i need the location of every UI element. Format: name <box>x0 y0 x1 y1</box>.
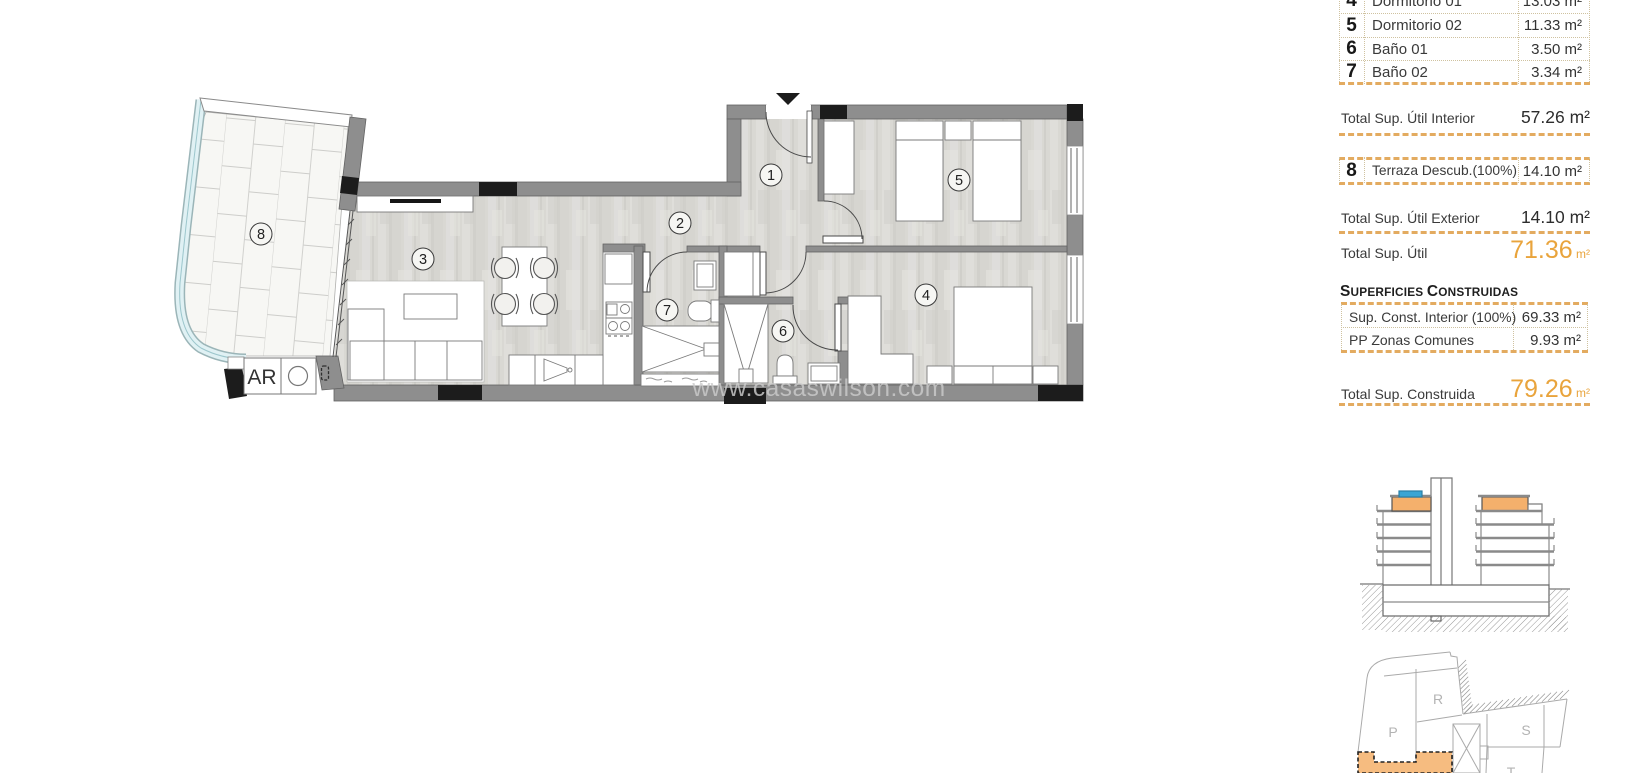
svg-text:AR: AR <box>247 366 276 389</box>
svg-text:2: 2 <box>676 216 684 232</box>
svg-text:1: 1 <box>767 168 775 184</box>
svg-text:T: T <box>1507 764 1516 773</box>
svg-text:3: 3 <box>419 252 427 268</box>
svg-text:6: 6 <box>779 324 787 340</box>
svg-text:7: 7 <box>663 303 671 319</box>
svg-text:5: 5 <box>955 173 963 189</box>
svg-text:R: R <box>1433 691 1443 707</box>
svg-text:P: P <box>1388 724 1397 740</box>
svg-text:www.casaswilson.com: www.casaswilson.com <box>691 375 945 402</box>
svg-text:4: 4 <box>922 288 930 304</box>
svg-text:8: 8 <box>257 227 265 243</box>
svg-text:S: S <box>1521 722 1530 738</box>
